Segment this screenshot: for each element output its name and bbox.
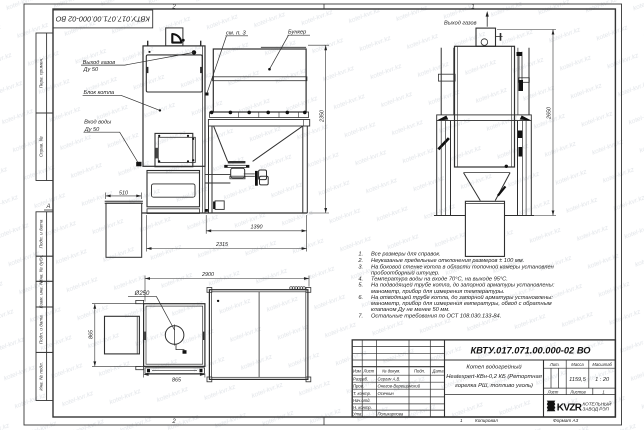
svg-text:6.: 6. [358,295,363,301]
svg-text:Н. контр.: Н. контр. [353,405,372,410]
svg-text:Подп.: Подп. [414,369,425,374]
svg-text:Перв. примен.: Перв. примен. [39,58,44,89]
svg-text:4.: 4. [358,277,363,283]
svg-text:KVZR: KVZR [557,402,583,413]
svg-text:На отводящей трубе котла, до з: На отводящей трубе котла, до запорной ар… [371,294,553,301]
svg-text:Лист: Лист [547,390,559,395]
svg-text:А: А [45,204,50,210]
svg-text:Лист: Лист [363,369,375,374]
svg-text:2: 2 [171,419,176,425]
svg-text:Т. контр.: Т. контр. [353,391,371,396]
svg-text:Котел водогрейный: Котел водогрейный [466,364,522,371]
svg-text:865: 865 [89,329,95,339]
svg-text:манометр, прибор для измерения: манометр, прибор для измерения емператур… [371,301,552,307]
svg-text:Дата: Дата [432,369,445,374]
svg-text:манометр, прибор для измерения: манометр, прибор для измерения температу… [371,289,505,295]
svg-text:Справ. №: Справ. № [39,136,44,157]
svg-text:1: 1 [602,390,604,395]
svg-text:2.: 2. [357,258,363,264]
svg-text:КОТЕЛЬНЫЙ: КОТЕЛЬНЫЙ [583,399,613,406]
svg-text:Формат А3: Формат А3 [553,418,579,423]
svg-text:ЗАВОД РЭП: ЗАВОД РЭП [583,407,610,412]
svg-text:Нач.отд.: Нач.отд. [353,398,371,403]
svg-text:2315: 2315 [215,242,229,248]
svg-text:865: 865 [172,378,182,384]
svg-text:1.: 1. [358,252,363,258]
svg-text:Разраб.: Разраб. [353,377,368,382]
svg-text:3.: 3. [358,264,363,270]
svg-text:Инв. № подл.: Инв. № подл. [39,362,44,391]
svg-text:КВТУ.017.071.00.000-02 ВО: КВТУ.017.071.00.000-02 ВО [55,14,149,23]
svg-text:Изм: Изм [353,369,361,374]
svg-text:Ø250: Ø250 [134,291,150,297]
svg-text:1159,5: 1159,5 [569,377,587,383]
svg-text:2350: 2350 [319,110,325,123]
svg-text:5.: 5. [358,283,363,289]
svg-text:см. п. 3: см. п. 3 [226,30,247,36]
svg-text:горелка РШ, топливо уголь): горелка РШ, топливо уголь) [455,383,533,389]
svg-text:Сергач А.В.: Сергач А.В. [378,377,401,382]
svg-text:На боковой стенке котла в обла: На боковой стенке котла в области топочн… [371,263,555,270]
svg-text:На подводящей трубе котла, до: На подводящей трубе котла, до запорной а… [371,282,555,289]
svg-text:2900: 2900 [201,272,214,278]
svg-text:1 : 20: 1 : 20 [595,377,610,383]
svg-text:Все размеры для справок.: Все размеры для справок. [371,252,441,258]
svg-text:Heatexpert-КВн-0,2 КБ (Ретортн: Heatexpert-КВн-0,2 КБ (Ретортная [446,374,542,380]
svg-text:Бункер: Бункер [288,30,306,36]
svg-text:Температура воды на входе 70°С: Температура воды на входе 70°С, на выход… [371,277,508,283]
svg-text:Пров.: Пров. [353,384,364,389]
svg-text:2650: 2650 [547,107,553,120]
svg-text:Осечкин: Осечкин [378,391,395,396]
svg-text:1390: 1390 [251,224,263,230]
svg-text:Подп. и дата: Подп. и дата [39,219,44,248]
svg-text:7.: 7. [358,313,363,319]
svg-text:клапаном Ду не менее 50 мм.: клапаном Ду не менее 50 мм. [371,307,450,313]
svg-text:Масштаб: Масштаб [592,362,612,367]
svg-text:Взам. инв. №: Взам. инв. № [39,280,44,308]
svg-text:Выход газов: Выход газов [444,21,477,27]
svg-text:Утв.: Утв. [353,412,363,417]
svg-text:Листов: Листов [569,390,586,395]
svg-text:Подп. и дата: Подп. и дата [39,315,44,344]
svg-text:1: 1 [471,5,474,11]
svg-text:510: 510 [119,190,128,196]
svg-text:№ докум.: № докум. [382,369,400,374]
svg-text:1: 1 [460,418,463,423]
svg-text:Инв. № дубл.: Инв. № дубл. [39,255,44,283]
svg-text:2: 2 [171,5,176,11]
svg-text:Неуказаные предельные отклонен: Неуказаные предельные отклонения размеро… [371,258,524,264]
svg-text:Вход воды: Вход воды [84,120,111,126]
svg-text:пробоотборный штуцер.: пробоотборный штуцер. [371,269,440,276]
svg-text:Онегов-Верещинский: Онегов-Верещинский [378,384,421,389]
svg-text:Масса: Масса [571,362,584,367]
svg-text:Копировал: Копировал [475,418,498,423]
svg-text:КВТУ.017.071.00.000-02 ВО: КВТУ.017.071.00.000-02 ВО [470,346,591,356]
svg-text:Лит.: Лит. [549,362,560,367]
svg-text:Поликарпова: Поликарпова [378,412,404,417]
svg-text:Остальные требования по ОСТ 10: Остальные требования по ОСТ 108.030.133-… [371,313,501,319]
svg-text:Ду 50: Ду 50 [83,67,99,73]
